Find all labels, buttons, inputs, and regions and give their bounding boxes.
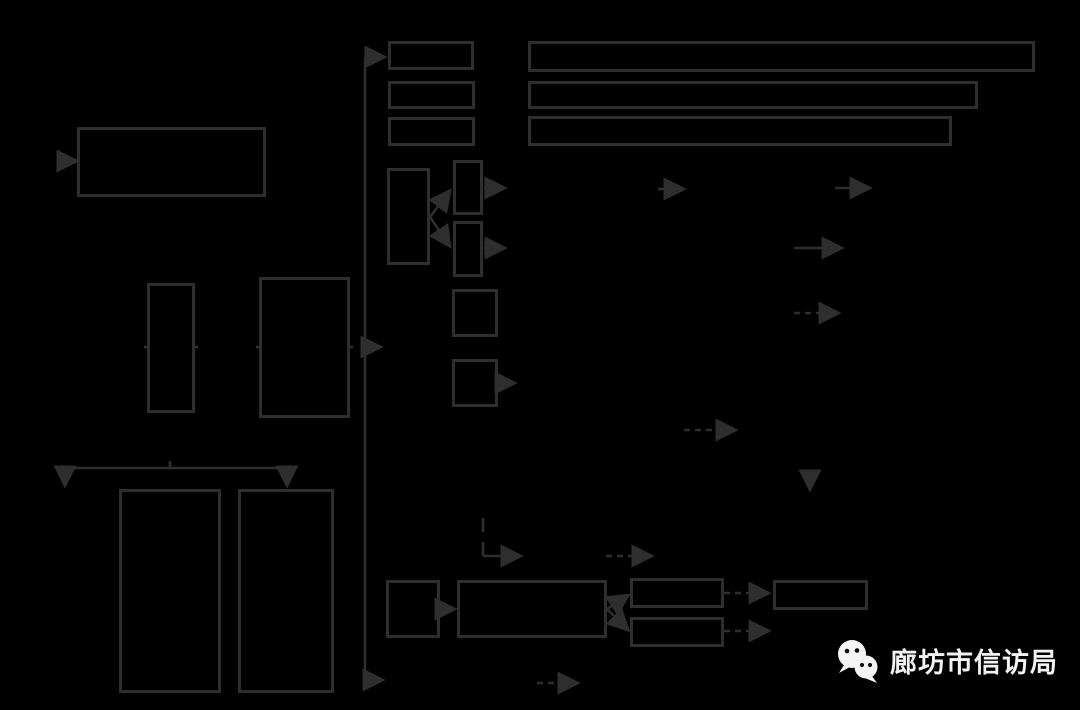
- midtall-branch-up: [430, 192, 449, 217]
- box-bottom-right: [773, 580, 868, 610]
- wide-branch-up: [607, 596, 627, 609]
- box-square-2: [452, 359, 498, 407]
- box-long-row-3: [528, 116, 952, 146]
- box-column-row-3: [388, 117, 475, 146]
- flowchart-canvas: 廊坊市信访局: [0, 0, 1080, 710]
- box-bottom-wide: [457, 580, 607, 638]
- box-bottom-left-1: [119, 489, 221, 693]
- wechat-brand-footer: 廊坊市信访局: [836, 630, 1076, 690]
- box-top-left-large: [77, 127, 266, 197]
- box-bottom-left-2: [238, 489, 334, 693]
- box-pair-lower: [453, 221, 483, 277]
- box-left-mid-tall: [259, 277, 350, 418]
- box-column-row-2: [388, 81, 475, 109]
- box-stack-upper: [630, 578, 724, 608]
- box-mid-tall: [387, 168, 430, 265]
- midtall-branch-down: [430, 217, 449, 245]
- box-long-row-1: [528, 41, 1035, 72]
- box-bottom-small: [386, 580, 440, 638]
- brand-text: 廊坊市信访局: [890, 641, 1058, 680]
- box-stack-lower: [630, 617, 724, 647]
- wechat-logo-icon: [836, 634, 880, 686]
- box-pair-upper: [453, 160, 483, 215]
- wide-branch-down: [607, 609, 627, 629]
- box-long-row-2: [528, 81, 978, 109]
- box-left-narrow-tall: [147, 283, 195, 413]
- box-column-row-1: [388, 41, 474, 70]
- box-square-1: [452, 289, 498, 337]
